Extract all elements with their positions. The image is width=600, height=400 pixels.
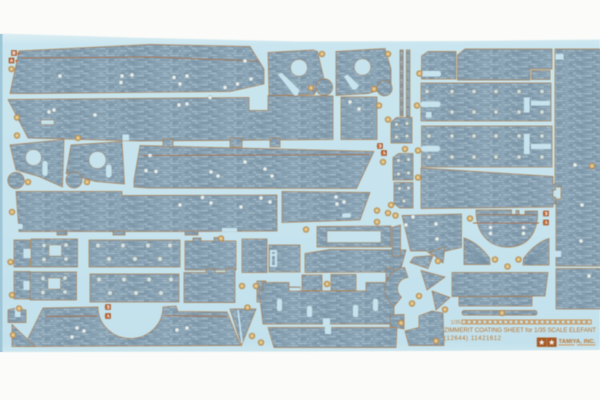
svg-text:1/35: 1/35 (451, 320, 461, 326)
svg-text:(12644) 11421612: (12644) 11421612 (444, 336, 502, 342)
svg-text:A: A (10, 58, 13, 63)
svg-text:B: B (12, 51, 15, 56)
svg-text:ZIMMERIT COATING SHEET for 1/3: ZIMMERIT COATING SHEET for 1/35 SCALE EL… (444, 327, 596, 334)
svg-text:TAMIYA, INC.: TAMIYA, INC. (559, 339, 596, 345)
